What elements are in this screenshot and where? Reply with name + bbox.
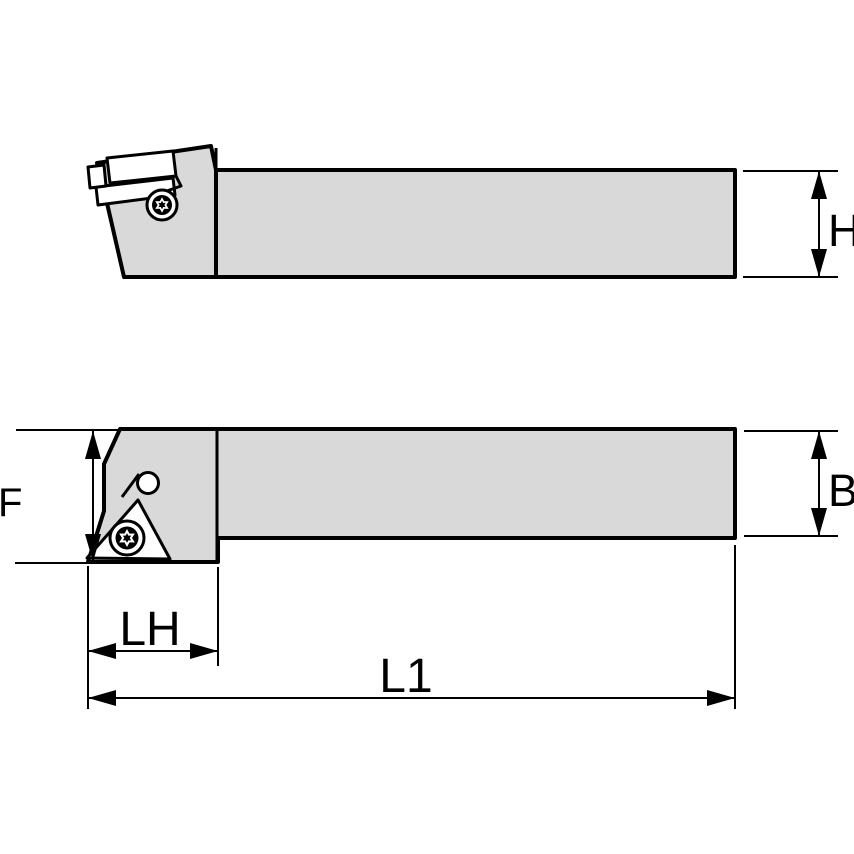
dimension-b-label: B bbox=[828, 465, 854, 516]
arrowhead-icon bbox=[707, 690, 735, 706]
technical-drawing-canvas: H F bbox=[0, 0, 854, 854]
torx-screw-icon bbox=[147, 190, 177, 220]
arrowhead-icon bbox=[88, 643, 116, 659]
arrowhead-icon bbox=[190, 643, 218, 659]
dimension-l1: L1 bbox=[88, 545, 735, 709]
dimension-l1-label: L1 bbox=[379, 650, 432, 703]
dimension-h: H bbox=[743, 171, 854, 277]
plan-view-body bbox=[88, 429, 735, 562]
arrowhead-icon bbox=[85, 431, 101, 459]
arrowhead-icon bbox=[811, 431, 827, 459]
arrowhead-icon bbox=[811, 508, 827, 536]
dimension-h-label: H bbox=[828, 205, 854, 256]
arrowhead-icon bbox=[811, 171, 827, 199]
dimension-f-label: F bbox=[0, 481, 22, 525]
side-view: H bbox=[88, 146, 854, 277]
dimension-b: B bbox=[744, 431, 854, 536]
torx-screw-icon bbox=[110, 521, 144, 555]
dimension-lh-label: LH bbox=[119, 603, 180, 656]
side-view-shank bbox=[216, 170, 735, 277]
dimension-lh: LH bbox=[88, 567, 218, 666]
arrowhead-icon bbox=[811, 249, 827, 277]
side-view-clamp-tip bbox=[88, 165, 106, 188]
arrowhead-icon bbox=[88, 690, 116, 706]
plan-view: F B LH L1 bbox=[0, 429, 854, 709]
toolholder-dimension-drawing: H F bbox=[0, 0, 854, 854]
